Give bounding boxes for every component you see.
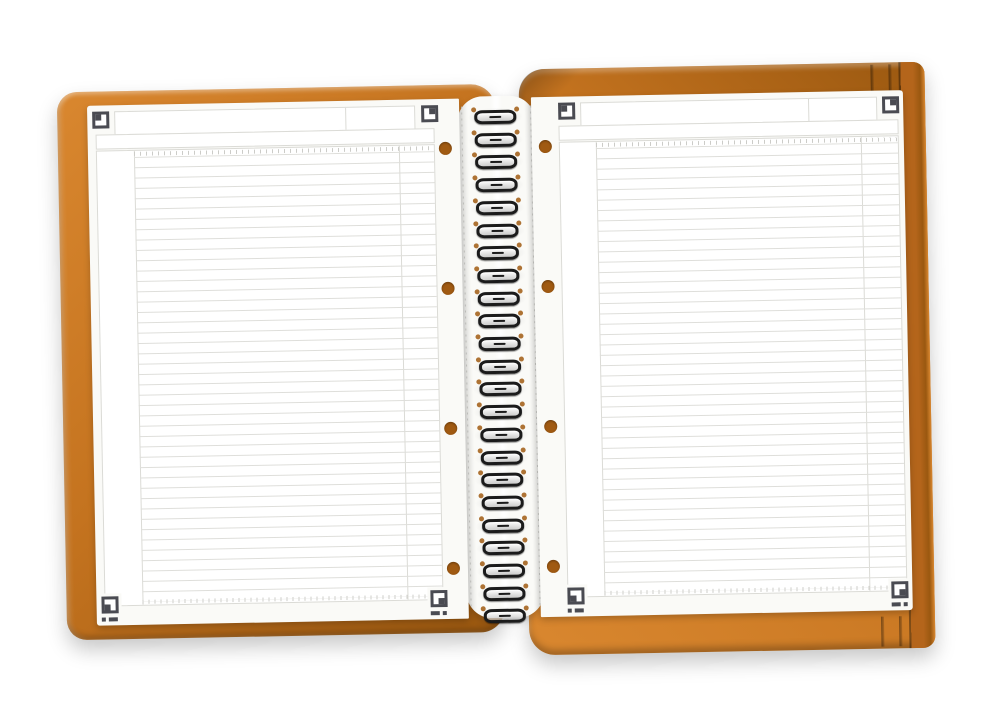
marker-notch	[890, 99, 896, 105]
cover-slit	[881, 617, 885, 647]
coil-hole-dot	[514, 107, 519, 112]
open-notebook	[56, 62, 935, 665]
coil-hole-dot	[521, 492, 526, 497]
scan-corner-marker-icon	[101, 596, 118, 613]
marker-notch	[439, 598, 445, 604]
code-dot	[102, 618, 106, 622]
marker-notch	[429, 108, 435, 114]
coil-hole-dot	[518, 333, 523, 338]
marker-notch	[899, 589, 905, 595]
punch-hole	[444, 421, 457, 434]
code-bar	[109, 617, 118, 621]
code-bar	[575, 608, 584, 612]
coil-hole-dot	[521, 447, 526, 452]
coil-hole-dot	[522, 515, 527, 520]
coil-wire-cross	[491, 207, 503, 209]
punch-hole	[544, 419, 557, 432]
coil-hole-dot	[516, 220, 521, 225]
code-dot	[568, 609, 572, 613]
scan-corner-marker-icon	[882, 96, 899, 113]
punch-hole	[441, 281, 454, 294]
coil-hole-dot	[517, 265, 522, 270]
scan-corner-marker-icon	[421, 105, 438, 122]
coil-hole-dot	[478, 448, 483, 453]
cover-slit	[870, 65, 873, 91]
marker-notch	[105, 604, 111, 610]
coil-wire-cross	[498, 570, 510, 572]
code-dot	[904, 602, 908, 606]
scan-corner-marker-icon	[567, 587, 584, 604]
coil-hole-dot	[520, 424, 525, 429]
code-bar	[431, 611, 440, 615]
scan-corner-marker-icon	[92, 111, 109, 128]
coil-wire-cross	[494, 365, 506, 367]
marker-code	[892, 602, 908, 606]
marker-code	[431, 611, 447, 615]
marker-notch	[561, 106, 567, 112]
ruled-area	[559, 135, 908, 597]
marker-notch	[95, 115, 101, 121]
ruled-lines	[596, 142, 906, 593]
coil-wire-cross	[495, 434, 507, 436]
marker-notch	[570, 595, 576, 601]
ruled-lines	[134, 151, 442, 602]
coil-wire-cross	[489, 116, 501, 118]
scan-corner-marker-icon	[558, 102, 575, 119]
punch-hole	[547, 559, 560, 572]
marker-code	[568, 608, 584, 612]
coil-wire-cross	[492, 275, 504, 277]
cover-slit	[899, 616, 903, 646]
coil-wire-cross	[494, 343, 506, 345]
wire-coil	[467, 603, 543, 630]
coil-hole-dot	[515, 129, 520, 134]
spiral-binding	[457, 99, 544, 650]
coil-hole-dot	[519, 356, 524, 361]
header-divider	[345, 108, 346, 130]
coil-hole-dot	[518, 288, 523, 293]
scan-corner-marker-icon	[891, 581, 908, 598]
code-dot	[443, 611, 447, 615]
coil-wire-cross	[493, 297, 505, 299]
coil-wire-cross	[495, 411, 507, 413]
coil-wire-cross	[496, 456, 508, 458]
notebook-product-photo	[0, 0, 1000, 714]
coil-hole-dot	[516, 197, 521, 202]
coil-wire-cross	[497, 502, 509, 504]
ruled-area	[96, 144, 444, 606]
coil-wire-cross	[491, 184, 503, 186]
header-divider	[808, 99, 809, 121]
marker-code	[102, 617, 118, 621]
coil-wire-cross	[497, 524, 509, 526]
punch-hole	[539, 139, 552, 152]
coil-wire-cross	[498, 592, 510, 594]
scan-corner-marker-icon	[430, 590, 447, 607]
punch-hole	[447, 561, 460, 574]
cover-slit	[888, 64, 891, 90]
page-right	[531, 90, 913, 617]
coil-wire-cross	[491, 229, 503, 231]
punch-hole	[541, 279, 554, 292]
coil-hole-dot	[523, 560, 528, 565]
coil-hole-dot	[523, 583, 528, 588]
punch-hole	[439, 141, 452, 154]
coil-wire-cross	[490, 139, 502, 141]
code-bar	[892, 602, 901, 606]
page-left	[87, 99, 469, 626]
